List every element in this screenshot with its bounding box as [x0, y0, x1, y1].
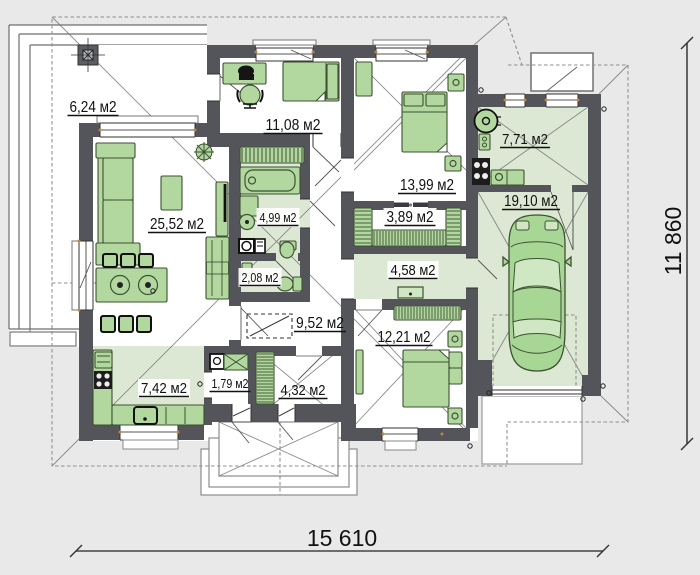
svg-text:7,42 м2: 7,42 м2: [141, 380, 187, 397]
svg-text:4,99 м2: 4,99 м2: [260, 210, 297, 225]
svg-text:3,89 м2: 3,89 м2: [387, 209, 434, 226]
svg-text:11 860: 11 860: [660, 207, 686, 276]
svg-text:1,79 м2: 1,79 м2: [212, 376, 249, 391]
svg-text:4,58 м2: 4,58 м2: [391, 262, 436, 279]
svg-text:4,32 м2: 4,32 м2: [281, 382, 326, 399]
svg-text:6,24 м2: 6,24 м2: [70, 99, 117, 116]
svg-text:15 610: 15 610: [307, 525, 377, 551]
svg-text:13,99 м2: 13,99 м2: [400, 177, 454, 194]
svg-text:25,52 м2: 25,52 м2: [150, 216, 204, 233]
svg-text:7,71 м2: 7,71 м2: [502, 131, 548, 148]
svg-text:12,21 м2: 12,21 м2: [378, 329, 431, 346]
svg-text:9,52 м2: 9,52 м2: [296, 315, 344, 332]
svg-text:2,08 м2: 2,08 м2: [242, 270, 279, 285]
svg-text:11,08 м2: 11,08 м2: [266, 117, 321, 134]
svg-text:19,10 м2: 19,10 м2: [504, 193, 558, 210]
